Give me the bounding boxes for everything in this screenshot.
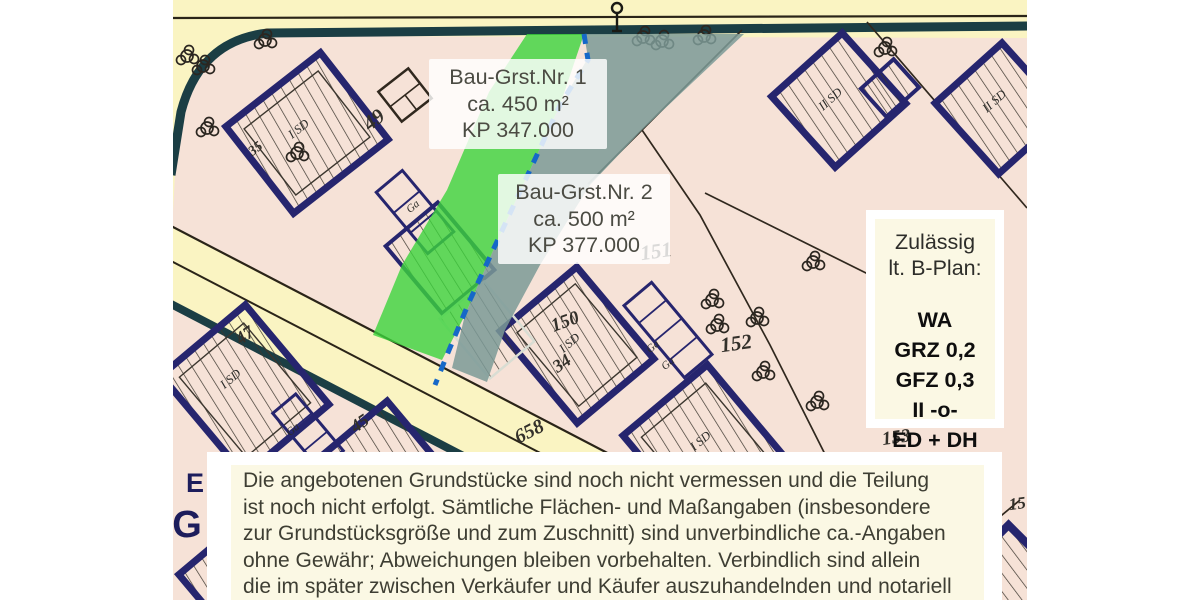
disclaimer-text: Die angebotenen Grundstücke sind noch ni… xyxy=(231,465,984,600)
plot-1-label: Bau-Grst.Nr. 1 ca. 450 m² KP 347.000 xyxy=(429,59,607,149)
disclaimer-line: ist noch nicht erfolgt. Sämtliche Fläche… xyxy=(243,495,974,522)
parcel-number-152: 152 xyxy=(719,329,754,357)
disclaimer-box: Die angebotenen Grundstücke sind noch ni… xyxy=(207,452,1002,600)
bplan-value-grz: GRZ 0,2 xyxy=(877,335,993,365)
site-plan-page: 49 35 150 151 152 153 15 658 34 45 47 I … xyxy=(0,0,1200,600)
street-name-letter-g: G xyxy=(173,504,202,546)
bplan-heading-line2: lt. B-Plan: xyxy=(877,255,993,281)
plot-2-name: Bau-Grst.Nr. 2 xyxy=(506,179,662,206)
plot-1-price: KP 347.000 xyxy=(437,117,599,144)
bplan-heading-line1: Zulässig xyxy=(877,229,993,255)
disclaimer-line: die im später zwischen Verkäufer und Käu… xyxy=(243,574,974,600)
plot-2-price: KP 377.000 xyxy=(506,232,662,259)
disclaimer-line: zur Grundstücksgröße und zum Zuschnitt) … xyxy=(243,521,974,548)
bplan-values: WA GRZ 0,2 GFZ 0,3 II -o- ED + DH xyxy=(877,305,993,455)
bplan-value-housetypes: ED + DH xyxy=(877,425,993,455)
bplan-value-wa: WA xyxy=(877,305,993,335)
bplan-value-gfz: GFZ 0,3 xyxy=(877,365,993,395)
street-name-letter-e: E xyxy=(186,468,204,498)
bplan-info-inner: Zulässig lt. B-Plan: WA GRZ 0,2 GFZ 0,3 … xyxy=(875,219,995,419)
plot-2-area: ca. 500 m² xyxy=(506,206,662,233)
plot-1-name: Bau-Grst.Nr. 1 xyxy=(437,64,599,91)
disclaimer-line: ohne Gewähr; Abweichungen bleiben vorbeh… xyxy=(243,548,974,575)
bplan-value-storeys: II -o- xyxy=(877,395,993,425)
plot-1-area: ca. 450 m² xyxy=(437,91,599,118)
bplan-info-box: Zulässig lt. B-Plan: WA GRZ 0,2 GFZ 0,3 … xyxy=(866,210,1004,428)
disclaimer-line: Die angebotenen Grundstücke sind noch ni… xyxy=(243,468,974,495)
parcel-number-15x: 15 xyxy=(1007,493,1027,514)
plot-2-label: Bau-Grst.Nr. 2 ca. 500 m² KP 377.000 xyxy=(498,174,670,264)
